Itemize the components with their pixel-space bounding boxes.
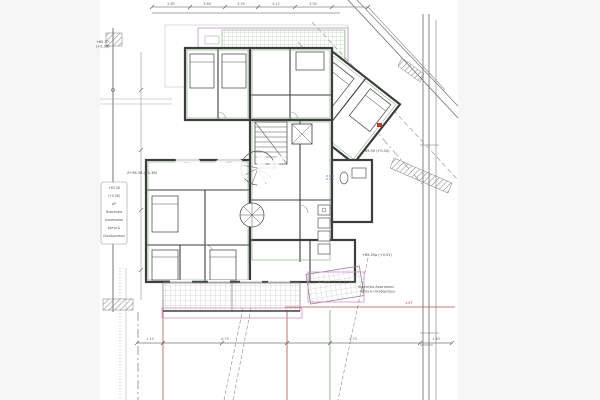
level-annotation-top-left: +65.37 <box>96 40 109 44</box>
level-annotation-mid-left: Z+65.38 (+0.38) <box>127 171 158 175</box>
red-marker <box>377 123 382 127</box>
sink <box>322 208 326 212</box>
hatch-marker-bottom <box>103 299 133 310</box>
svg-text:1.10: 1.10 <box>146 337 154 341</box>
neighbor-note-line2: Άρτια & Οικοδομήσιμη <box>360 290 395 294</box>
table <box>296 52 324 70</box>
svg-text:3.55: 3.55 <box>237 2 245 6</box>
neighbor-label-box: +65.38 (+0.38) ΔΡ Ιδιοκτησία Αναστασίου … <box>101 182 127 244</box>
svg-text:ΔΡ: ΔΡ <box>112 202 116 206</box>
svg-text:3.64: 3.64 <box>203 2 211 6</box>
bed <box>222 54 246 88</box>
level-annotation-southeast: +65.45μ (+0.51) <box>362 253 392 257</box>
svg-text:4.12: 4.12 <box>272 2 280 6</box>
floor-plan-svg: +65.37 (+0.38) +65.38 (+0.38) ΔΡ Ιδιοκτη… <box>0 0 600 400</box>
bed <box>152 250 178 280</box>
basin <box>352 168 366 178</box>
svg-text:Ιδιοκτησία: Ιδιοκτησία <box>106 210 122 214</box>
bed <box>190 54 214 88</box>
svg-text:2.85: 2.85 <box>167 2 175 6</box>
svg-text:Άρτια &: Άρτια & <box>108 226 121 230</box>
svg-text:1.40: 1.40 <box>432 337 440 341</box>
level-annotation-road: +65.00 (+0.10) <box>362 149 390 153</box>
svg-text:3.90: 3.90 <box>309 2 317 6</box>
wc-fixture <box>340 172 348 184</box>
bed <box>210 250 236 280</box>
svg-text:4.73: 4.73 <box>349 337 357 341</box>
svg-text:(+0.38): (+0.38) <box>108 194 120 198</box>
red-dimension: 1.07 <box>405 301 413 305</box>
svg-text:+65.38: +65.38 <box>108 186 119 190</box>
level-annotation-top-left-2: (+0.38) <box>96 45 110 49</box>
bed <box>152 196 178 232</box>
svg-text:Αναστασίου: Αναστασίου <box>105 218 124 222</box>
svg-text:Οικοδομήσιμη: Οικοδομήσιμη <box>103 234 125 238</box>
watermark-text: ROK <box>172 148 292 199</box>
neighbor-note-line1: Ιδιοκτησία Αναστασίου <box>358 285 394 289</box>
svg-text:4.75: 4.75 <box>221 337 229 341</box>
floorplan-canvas: +65.37 (+0.38) +65.38 (+0.38) ΔΡ Ιδιοκτη… <box>0 0 600 400</box>
